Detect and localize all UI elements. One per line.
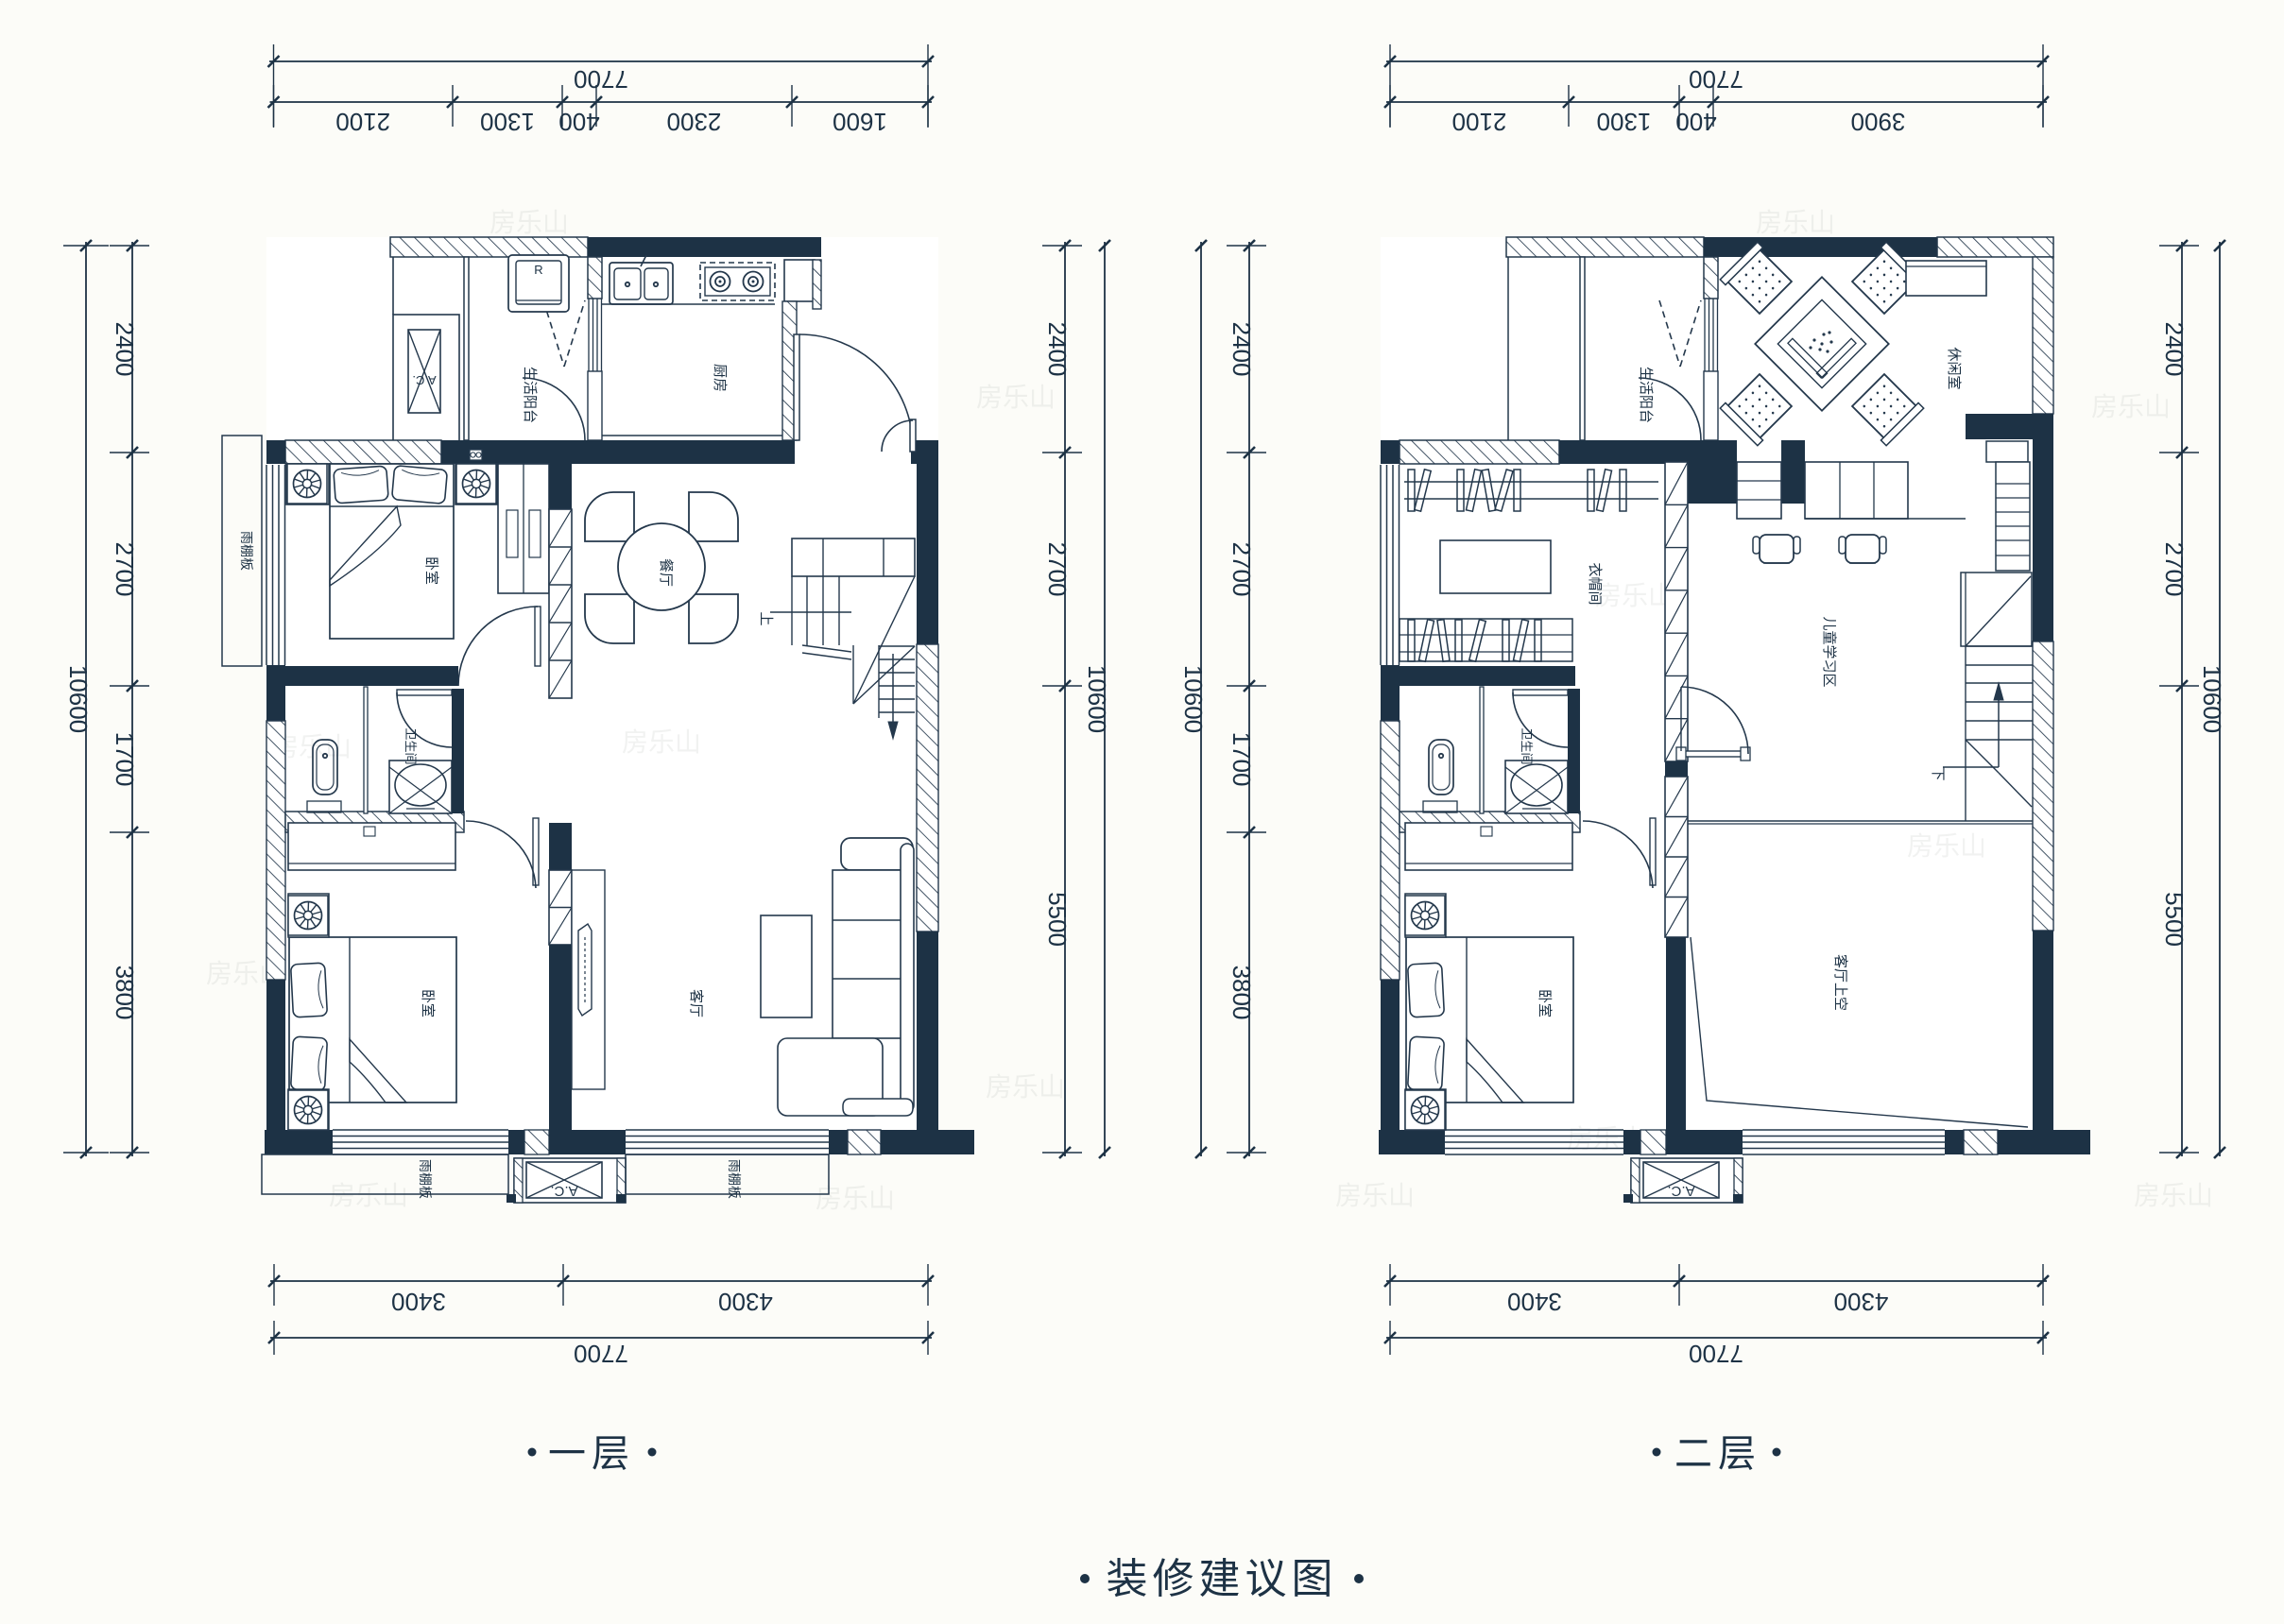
- svg-text:卧室: 卧室: [423, 556, 439, 585]
- svg-text:7700: 7700: [1689, 65, 1743, 94]
- svg-text:上: 上: [758, 611, 774, 625]
- svg-text:生活阳台: 生活阳台: [522, 367, 538, 423]
- svg-text:卧室: 卧室: [1537, 989, 1553, 1017]
- svg-text:2100: 2100: [1452, 108, 1507, 136]
- svg-text:下: 下: [1930, 766, 1946, 780]
- svg-text:7700: 7700: [1689, 1340, 1743, 1368]
- svg-text:房乐山: 房乐山: [2134, 1181, 2213, 1210]
- svg-text:厨房: 厨房: [712, 364, 728, 392]
- svg-text:3400: 3400: [1507, 1288, 1562, 1316]
- svg-text:休闲室: 休闲室: [1946, 347, 1962, 389]
- svg-text:餐厅: 餐厅: [658, 558, 674, 587]
- svg-text:4300: 4300: [1834, 1288, 1889, 1316]
- svg-text:1600: 1600: [833, 108, 887, 136]
- svg-text:3800: 3800: [1228, 966, 1256, 1020]
- svg-text:3800: 3800: [111, 966, 139, 1020]
- svg-text:7700: 7700: [574, 65, 628, 94]
- svg-text:10600: 10600: [1083, 665, 1111, 733]
- svg-text:10600: 10600: [2198, 665, 2226, 733]
- svg-text:二层: 二层: [1674, 1433, 1761, 1475]
- svg-text:R: R: [534, 263, 542, 277]
- svg-text:房乐山: 房乐山: [622, 727, 701, 757]
- svg-text:2300: 2300: [667, 108, 722, 136]
- svg-text:客厅上空: 客厅上空: [1832, 954, 1848, 1011]
- svg-text:房乐山: 房乐山: [329, 1181, 408, 1210]
- svg-text:4300: 4300: [718, 1288, 773, 1316]
- svg-text:10600: 10600: [64, 665, 93, 733]
- svg-text:5500: 5500: [2160, 892, 2189, 947]
- svg-text:衣帽间: 衣帽间: [1587, 562, 1603, 605]
- svg-text:2400: 2400: [111, 322, 139, 377]
- svg-text:3900: 3900: [1851, 108, 1906, 136]
- svg-text:A.C.: A.C.: [412, 373, 436, 387]
- svg-text:雨棚板: 雨棚板: [418, 1159, 433, 1199]
- svg-text:2100: 2100: [335, 108, 390, 136]
- svg-text:房乐山: 房乐山: [976, 383, 1056, 412]
- svg-text:A.C.: A.C.: [1667, 1183, 1694, 1199]
- svg-text:一层: 一层: [548, 1433, 635, 1475]
- svg-text:2400: 2400: [1043, 322, 1072, 377]
- svg-text:雨棚板: 雨棚板: [239, 531, 254, 571]
- svg-text:儿童学习区: 儿童学习区: [1821, 616, 1838, 687]
- svg-text:400: 400: [1675, 108, 1716, 136]
- svg-text:生活阳台: 生活阳台: [1638, 367, 1654, 423]
- svg-text:2700: 2700: [111, 542, 139, 597]
- svg-text:装修建议图: 装修建议图: [1107, 1556, 1338, 1602]
- svg-text:5500: 5500: [1043, 892, 1072, 947]
- svg-text:客厅: 客厅: [688, 989, 704, 1017]
- svg-text:2700: 2700: [1228, 542, 1256, 597]
- svg-text:房乐山: 房乐山: [2091, 392, 2171, 421]
- svg-text:卫生间: 卫生间: [404, 727, 418, 764]
- svg-text:卫生间: 卫生间: [1520, 727, 1534, 764]
- svg-text:房乐山: 房乐山: [489, 208, 569, 237]
- svg-text:10600: 10600: [1179, 665, 1208, 733]
- svg-text:房乐山: 房乐山: [1756, 208, 1835, 237]
- svg-text:3400: 3400: [391, 1288, 446, 1316]
- svg-text:1300: 1300: [480, 108, 535, 136]
- svg-text:房乐山: 房乐山: [1907, 831, 1986, 861]
- svg-text:房乐山: 房乐山: [816, 1184, 895, 1213]
- svg-text:雨棚板: 雨棚板: [727, 1159, 742, 1199]
- svg-text:7700: 7700: [574, 1340, 628, 1368]
- svg-text:房乐山: 房乐山: [1335, 1181, 1415, 1210]
- svg-text:2400: 2400: [1228, 322, 1256, 377]
- svg-text:1300: 1300: [1597, 108, 1652, 136]
- svg-text:A.C.: A.C.: [550, 1183, 577, 1199]
- svg-text:1700: 1700: [1228, 732, 1256, 787]
- svg-text:1700: 1700: [111, 732, 139, 787]
- svg-text:400: 400: [558, 108, 599, 136]
- svg-text:2400: 2400: [2160, 322, 2189, 377]
- svg-text:房乐山: 房乐山: [1595, 581, 1674, 610]
- svg-text:2700: 2700: [1043, 542, 1072, 597]
- svg-text:2700: 2700: [2160, 542, 2189, 597]
- svg-text:卧室: 卧室: [420, 989, 436, 1017]
- svg-text:房乐山: 房乐山: [986, 1072, 1065, 1102]
